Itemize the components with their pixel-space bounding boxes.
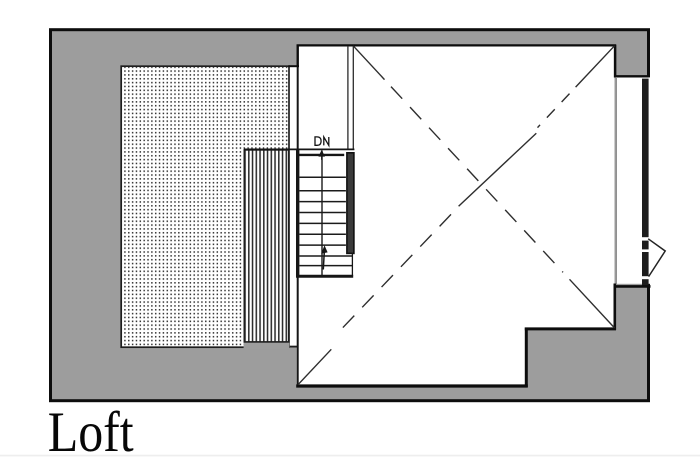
- svg-text:Loft: Loft: [48, 401, 134, 460]
